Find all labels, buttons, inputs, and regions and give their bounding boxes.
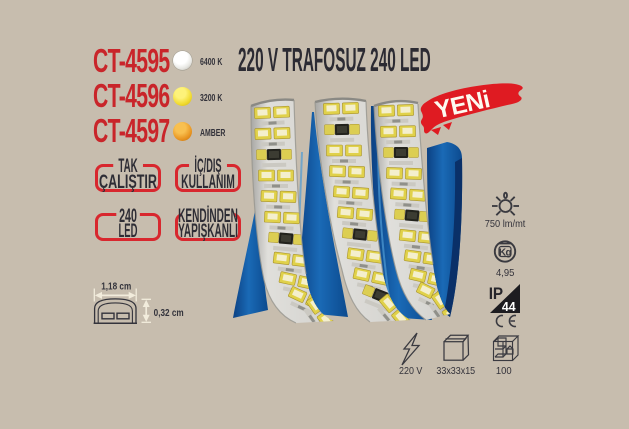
svg-text:0,32 cm: 0,32 cm: [154, 306, 184, 318]
svg-text:1,18 cm: 1,18 cm: [101, 279, 131, 291]
svg-text:YENi: YENi: [432, 86, 492, 124]
svg-text:Kg: Kg: [499, 247, 512, 258]
svg-text:44: 44: [502, 300, 516, 314]
